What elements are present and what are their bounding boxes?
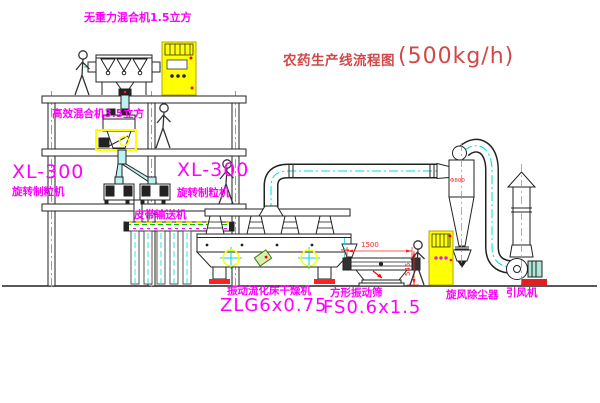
label-high-eff-mixer: 高效混合机3.5立方 — [52, 109, 144, 120]
control-cabinet-icon-2 — [429, 231, 453, 285]
label-sieve-model: FS0.6x1.5 — [323, 299, 421, 317]
granulator-left-drawing — [104, 184, 134, 204]
cad-drawing-canvas: 农药生产线流程图 (500kg/h) 无重力混合机1.5立方 高效混合机3.5立… — [0, 0, 600, 403]
control-cabinet-icon-1 — [162, 42, 196, 95]
label-xl300-left: XL-300 — [12, 163, 84, 182]
title-capacity: (500kg/h) — [398, 44, 514, 69]
label-dryer-model: ZLG6x0.75 — [220, 297, 328, 315]
exhaust-duct-drawing — [259, 164, 449, 217]
induced-fan-drawing — [507, 259, 548, 286]
label-fan: 引风机 — [506, 288, 538, 299]
label-belt-conveyor: 皮带输送机 — [134, 210, 187, 221]
label-granulator-right: 旋转制粒机 — [177, 188, 230, 199]
worker-figure-icon — [156, 104, 171, 148]
dimension-cyclone: Φ800 — [450, 179, 465, 185]
title-chinese: 农药生产线流程图 — [283, 49, 395, 69]
worker-figure-icon — [75, 51, 90, 95]
label-granulator-left: 旋转制粒机 — [12, 187, 65, 198]
label-cyclone: 旋风除尘器 — [446, 290, 499, 301]
fluid-bed-dryer-drawing — [197, 209, 357, 284]
dimension-545: 545 — [405, 263, 412, 276]
label-xl300-right: XL-300 — [177, 161, 249, 180]
label-gravity-mixer: 无重力混合机1.5立方 — [84, 12, 192, 23]
dimension-1500: 1500 — [361, 242, 379, 249]
drawing-title: 农药生产线流程图 (500kg/h) — [283, 44, 514, 69]
